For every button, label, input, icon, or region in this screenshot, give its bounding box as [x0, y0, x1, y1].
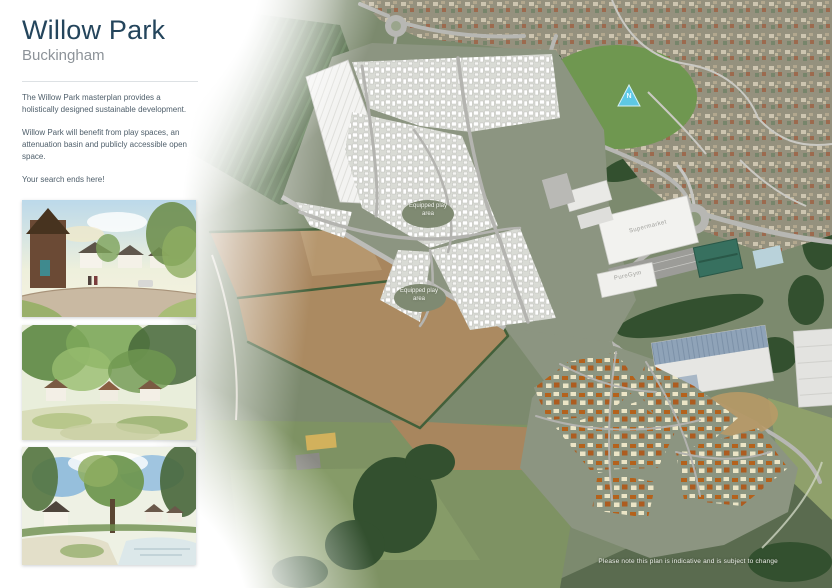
sidebar: Willow Park Buckingham The Willow Park m…: [22, 0, 198, 197]
divider: [22, 81, 198, 82]
page-title: Willow Park: [22, 16, 198, 46]
page-subtitle: Buckingham: [22, 47, 198, 64]
play-area-patch-2: [394, 284, 446, 312]
benefits-paragraph: Willow Park will benefit from play space…: [22, 127, 198, 163]
tagline: Your search ends here!: [22, 174, 198, 186]
roundabout-north: [385, 15, 407, 37]
play-area-patch-1: [402, 200, 454, 228]
watercolour-render-pond: [22, 447, 196, 565]
watercolour-render-woodland: [22, 325, 196, 440]
intro-paragraph: The Willow Park masterplan provides a ho…: [22, 92, 198, 116]
warehouse-right: [793, 329, 832, 408]
farm-barn: [295, 453, 320, 470]
masterplan-page: Supermarket PureGym Equipped play area E…: [0, 0, 832, 588]
watercolour-render-street: [22, 200, 196, 317]
farm-building-tan: [305, 432, 336, 450]
